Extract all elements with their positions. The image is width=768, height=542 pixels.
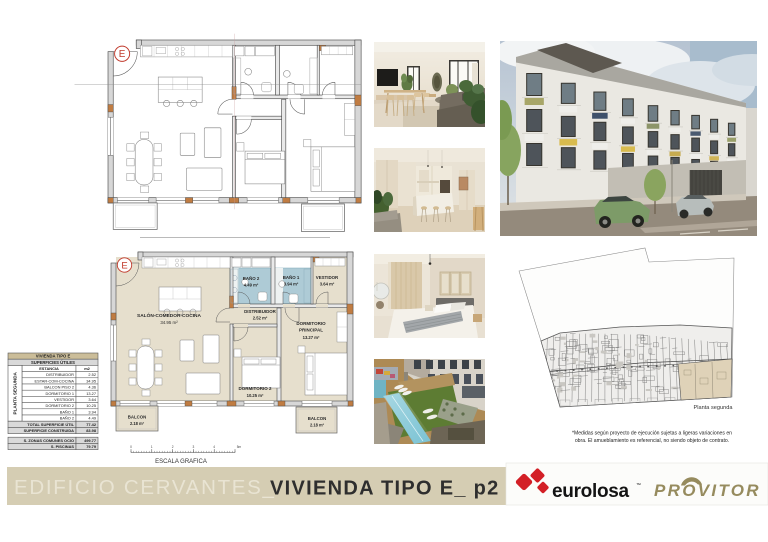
svg-text:2.52 m²: 2.52 m² (253, 316, 268, 321)
svg-text:4: 4 (213, 445, 215, 449)
svg-text:13.27 m²: 13.27 m² (303, 335, 320, 340)
svg-text:4.49: 4.49 (88, 416, 96, 421)
svg-text:PLANTA SEGUNDA: PLANTA SEGUNDA (13, 371, 18, 414)
svg-text:*Medidas según proyecto de eje: *Medidas según proyecto de ejecución suj… (572, 431, 732, 437)
svg-text:4.36: 4.36 (88, 385, 96, 390)
svg-text:BALCON PISO 2: BALCON PISO 2 (44, 385, 74, 390)
svg-text:BAÑO 2: BAÑO 2 (60, 416, 74, 421)
svg-text:EDIFICIO CERVANTES_: EDIFICIO CERVANTES_ (14, 476, 276, 499)
svg-text:BALCON: BALCON (308, 416, 326, 421)
svg-text:VESTIDOR: VESTIDOR (54, 397, 74, 402)
svg-text:VIVIENDA TIPO E_ p2: VIVIENDA TIPO E_ p2 (270, 478, 500, 500)
svg-text:3.64 m²: 3.64 m² (320, 282, 335, 287)
svg-text:ESCALA GRAFICA: ESCALA GRAFICA (155, 459, 207, 465)
svg-text:2.52: 2.52 (88, 372, 96, 377)
svg-text:2.18 m²: 2.18 m² (130, 421, 145, 426)
svg-text:DORMITORIO 2: DORMITORIO 2 (46, 403, 74, 408)
svg-text:DORMITORIO: DORMITORIO (296, 321, 326, 326)
svg-text:SUPERFICIE CONSTRUIDA: SUPERFICIE CONSTRUIDA (24, 428, 75, 433)
svg-text:2: 2 (172, 445, 174, 449)
svg-text:Planta segunda: Planta segunda (694, 405, 734, 411)
svg-text:5m: 5m (237, 445, 242, 449)
svg-text:34.95 m²: 34.95 m² (160, 320, 178, 325)
svg-text:13.27: 13.27 (86, 391, 96, 396)
svg-text:DISTRIBUIDOR: DISTRIBUIDOR (46, 372, 74, 377)
svg-text:10.25 m²: 10.25 m² (247, 393, 264, 398)
svg-text:TOTAL SUPERFICIE ÚTIL: TOTAL SUPERFICIE ÚTIL (27, 422, 74, 427)
svg-text:DISTRIBUIDOR: DISTRIBUIDOR (244, 309, 277, 314)
svg-text:PROVITOR: PROVITOR (654, 481, 761, 500)
svg-text:SUPERFICIES ÚTILES: SUPERFICIES ÚTILES (31, 360, 75, 365)
svg-text:83.98: 83.98 (86, 428, 97, 433)
svg-text:BAÑO 1: BAÑO 1 (60, 409, 74, 414)
svg-text:E: E (119, 49, 126, 60)
svg-text:S. PISCINAS: S. PISCINAS (51, 444, 75, 449)
svg-text:BAÑO 2: BAÑO 2 (243, 276, 260, 281)
svg-text:BAÑO 1: BAÑO 1 (283, 275, 300, 280)
svg-text:BALCON: BALCON (128, 415, 146, 420)
svg-text:E: E (121, 260, 127, 271)
svg-text:3.94 m²: 3.94 m² (284, 282, 299, 287)
svg-text:ESTAR-COM-COCINA: ESTAR-COM-COCINA (35, 378, 75, 383)
svg-text:VIVIENDA TIPO E: VIVIENDA TIPO E (36, 354, 71, 359)
svg-text:79.79: 79.79 (86, 444, 97, 449)
svg-text:obra. El amueblamiento es refe: obra. El amueblamiento es referencial, n… (575, 438, 729, 444)
svg-text:3.64: 3.64 (88, 397, 96, 402)
svg-text:3.94: 3.94 (88, 409, 96, 414)
svg-text:™: ™ (636, 483, 641, 489)
svg-text:ESTANCIA: ESTANCIA (39, 366, 59, 371)
svg-text:DORMITORIO 2: DORMITORIO 2 (239, 386, 272, 391)
svg-text:VESTIDOR: VESTIDOR (316, 275, 339, 280)
svg-text:2.18 m²: 2.18 m² (310, 423, 325, 428)
svg-text:m2: m2 (84, 366, 90, 371)
svg-text:S. ZONAS COMUNES OCIO: S. ZONAS COMUNES OCIO (24, 438, 74, 443)
svg-text:499.77: 499.77 (84, 438, 96, 443)
svg-text:DORMITORIO 1: DORMITORIO 1 (46, 391, 74, 396)
svg-text:34.95: 34.95 (86, 378, 96, 383)
svg-text:3: 3 (193, 445, 195, 449)
svg-text:4.49 m²: 4.49 m² (244, 283, 259, 288)
svg-text:1: 1 (151, 445, 153, 449)
svg-text:10.25: 10.25 (86, 403, 96, 408)
svg-text:PRINCIPAL: PRINCIPAL (299, 328, 323, 333)
svg-text:eurolosa: eurolosa (552, 481, 630, 502)
svg-text:77.42: 77.42 (86, 422, 97, 427)
svg-text:0: 0 (130, 445, 132, 449)
